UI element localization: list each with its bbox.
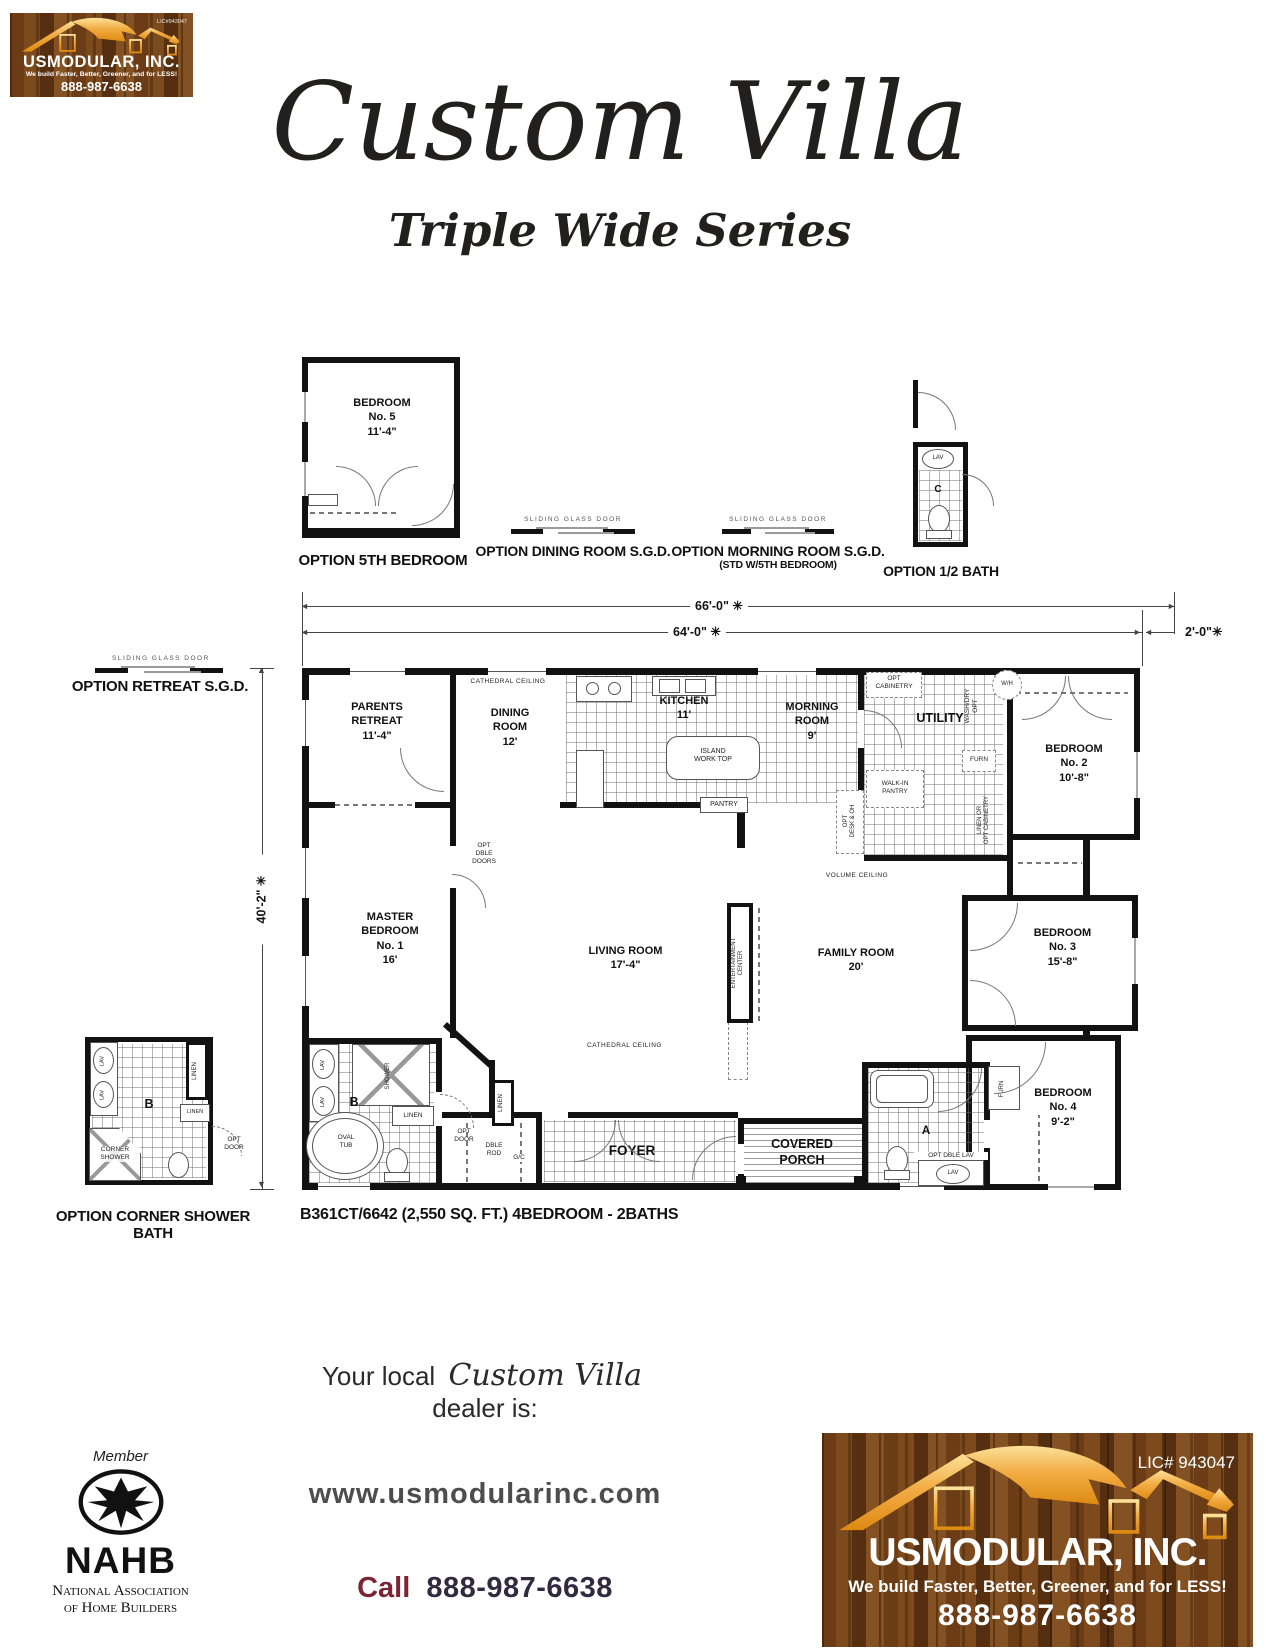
lav-label: LAV	[320, 1089, 328, 1115]
room-label-morning: MORNING ROOM 9'	[768, 700, 856, 743]
opt-cabinetry-label: OPT CABINETRY	[866, 675, 922, 691]
toilet	[168, 1152, 189, 1178]
caption-option-dining-sgd: OPTION DINING ROOM S.G.D.	[468, 543, 678, 559]
door-arc-dashed	[440, 1094, 474, 1128]
arrow-down-icon: ▼	[257, 1180, 266, 1189]
caption-option-5th-bedroom: OPTION 5TH BEDROOM	[298, 552, 468, 569]
opt-dble-lav-label: OPT DBLE LAV	[914, 1152, 988, 1160]
window	[302, 700, 309, 746]
toilet-tank	[384, 1172, 410, 1182]
room-label-kitchen: KITCHEN 11'	[638, 694, 730, 723]
nahb-eagle-icon	[77, 1467, 165, 1537]
wall	[862, 1062, 868, 1190]
window	[318, 1183, 370, 1190]
caption-option-retreat-sgd: OPTION RETREAT S.G.D.	[70, 678, 250, 695]
wall-diagonal	[443, 1022, 493, 1068]
room-label-living: LIVING ROOM 17'-4"	[568, 944, 683, 973]
sliding-glass-door-icon	[95, 666, 223, 674]
porch-post	[736, 1176, 746, 1186]
burner	[608, 682, 621, 695]
linen-or-opt-label: LINEN OR OPT CABINETRY	[977, 786, 993, 854]
nahb-acronym: NAHB	[28, 1542, 213, 1579]
opt-dble-doors-label: OPT DBLE DOORS	[460, 842, 508, 865]
roofline-icon	[830, 1441, 1245, 1541]
furnace-label: FURN	[962, 756, 996, 764]
dealer-prefix: Your local	[322, 1361, 435, 1391]
sliding-glass-door-label: SLIDING GLASS DOOR	[112, 655, 208, 662]
linen-label: LINEN	[392, 1112, 434, 1120]
water-heater-label: W/H	[992, 681, 1022, 688]
gc-label: G/C	[506, 1154, 532, 1162]
room-label-dining: DINING ROOM 12'	[462, 706, 558, 749]
window	[1134, 752, 1140, 798]
porch-post	[854, 1176, 864, 1186]
toilet-tank	[926, 530, 952, 539]
company-name: USMODULAR, INC.	[822, 1531, 1253, 1575]
door-arc	[962, 474, 994, 506]
door-arc	[452, 874, 486, 908]
room-letter-b: B	[138, 1096, 160, 1112]
volume-ceiling-label: VOLUME CEILING	[812, 872, 902, 880]
opt-sgd-dash	[335, 804, 415, 806]
dealer-series-name: Custom Villa	[448, 1358, 642, 1393]
sliding-glass-door-label: SLIDING GLASS DOOR	[515, 516, 631, 523]
room-label-bedroom2: BEDROOM No. 2 10'-8"	[1014, 742, 1134, 785]
island-label: ISLAND WORK TOP	[670, 748, 756, 765]
window	[302, 848, 309, 898]
window	[302, 392, 308, 422]
dim-tick	[250, 1189, 274, 1190]
linen-box-label: LINEN	[180, 1109, 210, 1116]
burner	[586, 682, 599, 695]
pantry-label: PANTRY	[700, 801, 748, 809]
window	[758, 668, 816, 675]
room-letter-c: C	[928, 483, 948, 496]
wall	[568, 1112, 738, 1118]
website: www.usmodularinc.com	[255, 1478, 715, 1511]
bathtub-inner	[876, 1075, 928, 1103]
toilet-tank	[884, 1170, 910, 1180]
shower-label: SHOWER	[385, 1046, 397, 1106]
shelf	[308, 494, 338, 506]
corner-shower-label: CORNER SHOWER	[90, 1146, 140, 1162]
call-phone: 888-987-6638	[426, 1572, 613, 1604]
lav-label: LAV	[936, 1170, 970, 1177]
sliding-glass-door-label: SLIDING GLASS DOOR	[725, 516, 831, 523]
sliding-glass-door-icon	[511, 527, 635, 535]
counter	[576, 750, 604, 808]
call-label: Call	[357, 1572, 410, 1604]
wall	[302, 668, 309, 1190]
wall	[536, 1112, 542, 1190]
cathedral-ceiling-label: CATHEDRAL CEILING	[452, 678, 564, 686]
room-label-porch: COVERED PORCH	[748, 1136, 856, 1169]
dim-depth: 40'-2" ✳	[254, 855, 269, 945]
brochure-page: LIC#943047 USMODULAR, INC. We build Fast…	[0, 0, 1275, 1650]
nahb-logo: Member NAHB National Association of Home…	[28, 1448, 213, 1617]
dim-tick	[1174, 592, 1175, 634]
wall	[738, 1118, 868, 1124]
window	[302, 462, 308, 496]
window	[1048, 1184, 1094, 1190]
page-title: Custom Villa	[160, 60, 1080, 185]
page-subtitle: Triple Wide Series	[160, 204, 1080, 257]
entertainment-dash	[758, 905, 760, 1021]
dealer-line: Your local Custom Villa dealer is:	[285, 1358, 685, 1424]
dim-main: 64'-0" ✳	[668, 624, 726, 639]
company-tagline: We build Faster, Better, Greener, and fo…	[822, 1577, 1253, 1597]
lav-label: LAV	[100, 1083, 108, 1108]
front-door-opening	[738, 1144, 744, 1174]
walkin-pantry-label: WALK-IN PANTRY	[866, 780, 924, 796]
plan-caption: B361CT/6642 (2,550 SQ. FT.) 4BEDROOM - 2…	[300, 1206, 720, 1224]
room-letter-b: B	[344, 1094, 364, 1110]
caption-option-corner-bath: OPTION CORNER SHOWER BATH	[38, 1208, 268, 1242]
dealer-suffix: dealer is:	[432, 1393, 538, 1423]
room-letter-a: A	[916, 1124, 936, 1139]
wall	[450, 808, 456, 1038]
window	[488, 668, 546, 675]
closet-dash	[520, 1120, 522, 1182]
wall	[450, 668, 456, 808]
arrow-left-icon: ◄	[1144, 628, 1153, 637]
caption-option-morning-sgd: OPTION MORNING ROOM S.G.D.	[670, 543, 886, 559]
linen-tall-label: LINEN	[192, 1046, 202, 1096]
arrow-right-icon: ►	[1133, 628, 1142, 637]
company-phone: 888-987-6638	[822, 1599, 1253, 1633]
wall	[302, 668, 1090, 675]
range	[576, 676, 632, 702]
room-label-family: FAMILY ROOM 20'	[806, 946, 906, 975]
oval-tub-label: OVAL TUB	[322, 1134, 370, 1150]
wall	[858, 668, 864, 710]
dim-overall: 66'-0" ✳	[690, 598, 748, 613]
sliding-glass-door-icon	[722, 527, 834, 535]
caption-option-morning-sgd-sub: (STD W/5TH BEDROOM)	[700, 559, 856, 571]
call-line: Call 888-987-6638	[255, 1572, 715, 1605]
wall	[1007, 840, 1013, 895]
lav-label: LAV	[100, 1049, 108, 1074]
nahb-assoc1: National Association	[28, 1583, 213, 1600]
linen-hall-label: LINEN	[498, 1083, 508, 1123]
toilet	[928, 505, 950, 533]
dim-tick	[250, 668, 274, 669]
door-arc	[400, 748, 444, 792]
sink-basin	[659, 679, 680, 693]
sink-basin	[685, 679, 706, 693]
dim-tick	[302, 592, 303, 666]
nahb-assoc2: of Home Builders	[28, 1600, 213, 1617]
usmodular-logo-bottom: LIC# 943047 USMODULAR, INC. We build Fas…	[822, 1433, 1253, 1647]
opt-door-label: OPT DOOR	[216, 1136, 252, 1152]
window	[350, 668, 405, 675]
room-label-master: MASTER BEDROOM No. 1 16'	[330, 910, 450, 967]
entertainment-label: ENTERTAINMENT CENTER	[731, 908, 749, 1018]
room-label-bedroom5: BEDROOM No. 5 11'-4"	[312, 396, 452, 439]
room-label-parents-retreat: PARENTS RETREAT 11'-4"	[312, 700, 442, 743]
wash-dry-label: WASH/DRY OPT	[964, 676, 980, 736]
closet-line	[310, 512, 396, 514]
window	[1132, 938, 1138, 984]
cathedral-ceiling-label: CATHEDRAL CEILING	[572, 1042, 677, 1050]
lav-label: LAV	[320, 1052, 328, 1078]
opt-desk-label: OPT DESK & OH	[843, 791, 857, 851]
room-label-utility: UTILITY	[900, 710, 980, 726]
nahb-member: Member	[28, 1448, 213, 1465]
window	[302, 956, 309, 1006]
wall	[864, 855, 1007, 861]
dim-tick	[1142, 610, 1143, 666]
caption-option-half-bath: OPTION 1/2 BATH	[870, 563, 1012, 579]
room-label-bedroom4: BEDROOM No. 4 9'-2"	[1008, 1086, 1118, 1129]
room-label-bedroom3: BEDROOM No. 3 15'-8"	[1000, 926, 1125, 969]
dim-eave: 2'-0"✳	[1180, 624, 1227, 639]
door-arc	[918, 392, 956, 430]
license-number: LIC#943047	[157, 19, 187, 25]
lav-label: LAV	[922, 455, 954, 462]
closet-rod	[1018, 862, 1082, 864]
